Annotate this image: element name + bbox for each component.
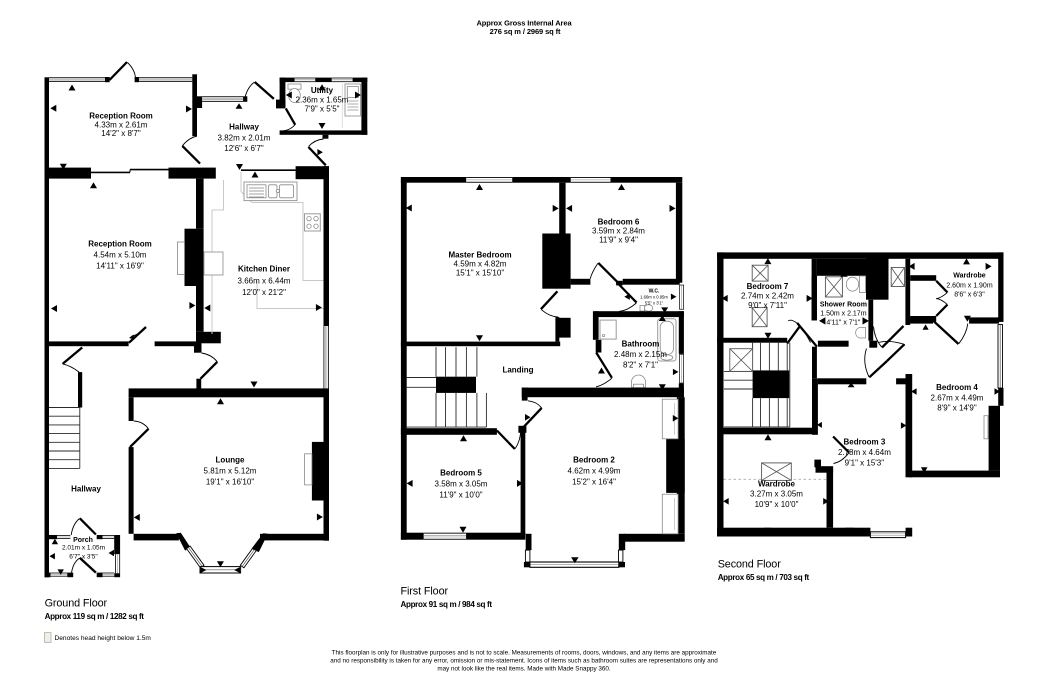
svg-text:14'2" x 8'7": 14'2" x 8'7" (101, 129, 141, 138)
svg-text:2.01m x 1.05m: 2.01m x 1.05m (62, 545, 105, 552)
svg-text:Shower Room: Shower Room (820, 302, 867, 309)
svg-text:Porch: Porch (73, 537, 93, 544)
svg-text:1.66m x 0.95m: 1.66m x 0.95m (640, 295, 668, 300)
svg-text:Reception Room: Reception Room (89, 112, 153, 121)
svg-text:15'2" x 16'4": 15'2" x 16'4" (572, 477, 616, 486)
svg-text:2.48m x 2.15m: 2.48m x 2.15m (614, 350, 667, 359)
svg-text:Kitchen Diner: Kitchen Diner (238, 265, 290, 274)
svg-text:9'0" x 7'11": 9'0" x 7'11" (748, 301, 787, 310)
svg-text:4'11" x 7'1": 4'11" x 7'1" (826, 320, 860, 327)
svg-text:Approx 91 sq m / 984 sq ft: Approx 91 sq m / 984 sq ft (401, 600, 493, 609)
svg-text:Bedroom 7: Bedroom 7 (747, 282, 789, 291)
svg-text:Ground Floor: Ground Floor (45, 597, 108, 609)
svg-text:Bedroom 2: Bedroom 2 (573, 455, 615, 464)
svg-text:7'9" x 5'5": 7'9" x 5'5" (305, 105, 340, 114)
svg-text:8'2" x 7'1": 8'2" x 7'1" (623, 361, 658, 370)
svg-text:Wardrobe: Wardrobe (953, 273, 986, 280)
svg-text:Lounge: Lounge (216, 456, 245, 465)
svg-text:3.59m x 2.84m: 3.59m x 2.84m (592, 226, 645, 235)
svg-text:276 sq m / 2969 sq ft: 276 sq m / 2969 sq ft (490, 27, 561, 36)
svg-text:3.82m x 2.01m: 3.82m x 2.01m (218, 133, 271, 142)
svg-text:Approx 65 sq m / 703 sq ft: Approx 65 sq m / 703 sq ft (718, 573, 810, 582)
svg-text:2.60m x 1.90m: 2.60m x 1.90m (946, 282, 992, 289)
svg-text:4.62m x 4.99m: 4.62m x 4.99m (568, 466, 621, 475)
svg-text:Hallway: Hallway (71, 485, 101, 494)
svg-text:First Floor: First Floor (401, 586, 449, 598)
svg-text:Bedroom 4: Bedroom 4 (936, 383, 978, 392)
svg-text:8'9" x 14'9": 8'9" x 14'9" (937, 404, 977, 413)
svg-text:9'1" x 15'3": 9'1" x 15'3" (845, 458, 885, 467)
svg-text:2.36m x 1.65m: 2.36m x 1.65m (296, 96, 349, 105)
svg-text:4.54m x 5.10m: 4.54m x 5.10m (94, 251, 147, 260)
svg-text:2.67m x 4.49m: 2.67m x 4.49m (931, 394, 984, 403)
svg-text:Wardrobe: Wardrobe (758, 480, 796, 489)
svg-text:Bathroom: Bathroom (622, 340, 660, 349)
svg-text:8'6" x 6'3": 8'6" x 6'3" (954, 292, 985, 299)
svg-text:5.81m x 5.12m: 5.81m x 5.12m (204, 467, 257, 476)
svg-text:Landing: Landing (502, 366, 533, 375)
svg-text:3.58m x 3.05m: 3.58m x 3.05m (435, 479, 488, 488)
svg-text:12'0" x 21'2": 12'0" x 21'2" (242, 288, 286, 297)
svg-text:Approx 119 sq m / 1282 sq ft: Approx 119 sq m / 1282 sq ft (45, 612, 145, 621)
svg-text:may not look like the real ite: may not look like the real items. Made w… (437, 666, 611, 673)
svg-text:5'5" x 3'1": 5'5" x 3'1" (645, 301, 664, 306)
svg-text:Bedroom 5: Bedroom 5 (440, 468, 482, 477)
svg-text:11'9" x 9'4": 11'9" x 9'4" (599, 236, 638, 245)
svg-text:1.50m x 2.17m: 1.50m x 2.17m (820, 311, 866, 318)
svg-text:10'9" x 10'0": 10'9" x 10'0" (755, 500, 799, 509)
svg-text:14'11" x 16'9": 14'11" x 16'9" (96, 262, 144, 271)
svg-text:4.59m x 4.82m: 4.59m x 4.82m (454, 259, 507, 268)
svg-text:2.74m x 2.42m: 2.74m x 2.42m (741, 292, 794, 301)
svg-text:Denotes head height below 1.5m: Denotes head height below 1.5m (55, 635, 152, 642)
svg-text:Hallway: Hallway (229, 122, 259, 131)
svg-text:12'6" x 6'7": 12'6" x 6'7" (224, 144, 264, 153)
svg-text:15'1" x 15'10": 15'1" x 15'10" (456, 268, 504, 277)
svg-text:19'1" x 16'10": 19'1" x 16'10" (206, 478, 254, 487)
svg-text:11'9" x 10'0": 11'9" x 10'0" (439, 490, 482, 499)
svg-text:Reception Room: Reception Room (88, 240, 152, 249)
svg-text:6'7" x 3'5": 6'7" x 3'5" (69, 553, 98, 560)
svg-text:and no responsibility is taken: and no responsibility is taken for any e… (330, 658, 718, 665)
svg-text:Bedroom 6: Bedroom 6 (598, 217, 640, 226)
svg-text:Master Bedroom: Master Bedroom (448, 250, 511, 259)
svg-text:2.78m x 4.64m: 2.78m x 4.64m (838, 448, 891, 457)
svg-text:3.27m x 3.05m: 3.27m x 3.05m (750, 490, 803, 499)
svg-text:3.66m x 6.44m: 3.66m x 6.44m (238, 277, 291, 286)
svg-text:This floorplan is only for ill: This floorplan is only for illustrative … (332, 650, 717, 657)
svg-text:Second Floor: Second Floor (718, 558, 782, 570)
svg-text:Bedroom 3: Bedroom 3 (844, 438, 886, 447)
